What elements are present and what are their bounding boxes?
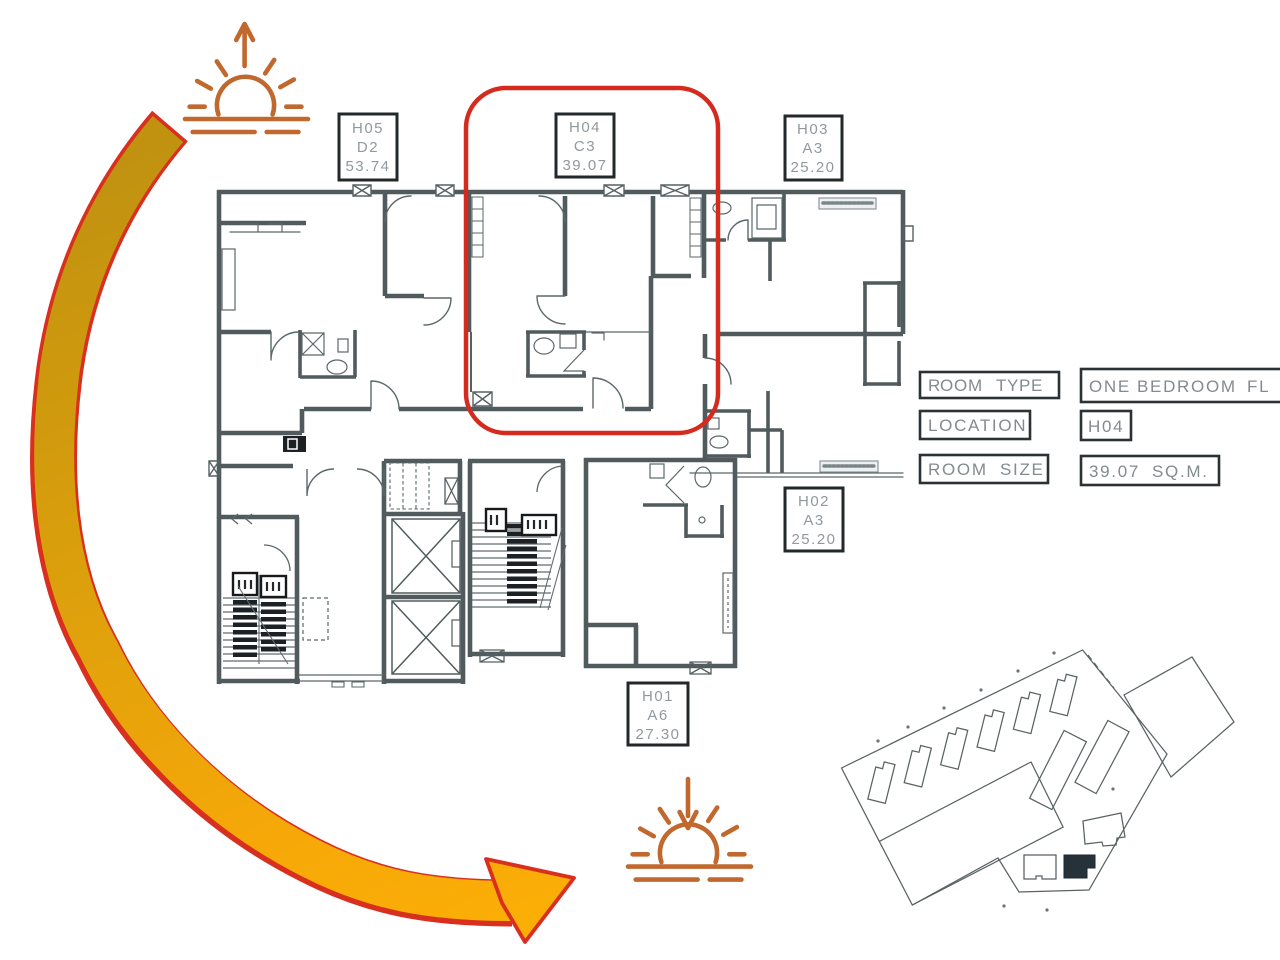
svg-text:ONE: ONE — [1089, 377, 1131, 396]
svg-text:M: M — [968, 376, 984, 395]
svg-text:H05: H05 — [352, 120, 384, 137]
svg-text:FL: FL — [1247, 377, 1270, 396]
svg-text:O: O — [954, 376, 969, 395]
svg-text:LOCATION: LOCATION — [928, 416, 1027, 435]
svg-text:H04: H04 — [1088, 417, 1124, 436]
svg-text:A3: A3 — [803, 512, 824, 529]
svg-text:25.20: 25.20 — [790, 159, 835, 176]
svg-text:D2: D2 — [357, 139, 379, 156]
svg-text:BEDROOM: BEDROOM — [1137, 377, 1237, 396]
svg-text:H02: H02 — [798, 493, 830, 510]
svg-text:27.30: 27.30 — [635, 726, 680, 743]
svg-text:25.20: 25.20 — [791, 531, 836, 548]
svg-text:ROOM: ROOM — [928, 460, 988, 479]
svg-text:SQ.M.: SQ.M. — [1152, 462, 1209, 481]
svg-text:A3: A3 — [802, 140, 823, 157]
svg-text:H01: H01 — [642, 688, 674, 705]
svg-text:E: E — [1031, 376, 1044, 395]
svg-text:H04: H04 — [569, 119, 601, 136]
svg-text:C3: C3 — [574, 138, 596, 155]
svg-text:SIZE: SIZE — [1000, 460, 1045, 479]
svg-text:H03: H03 — [797, 121, 829, 138]
svg-text:O: O — [940, 376, 955, 395]
svg-text:A6: A6 — [647, 707, 668, 724]
svg-text:53.74: 53.74 — [345, 158, 390, 175]
svg-text:39.07: 39.07 — [1089, 462, 1140, 481]
svg-text:39.07: 39.07 — [562, 157, 607, 174]
